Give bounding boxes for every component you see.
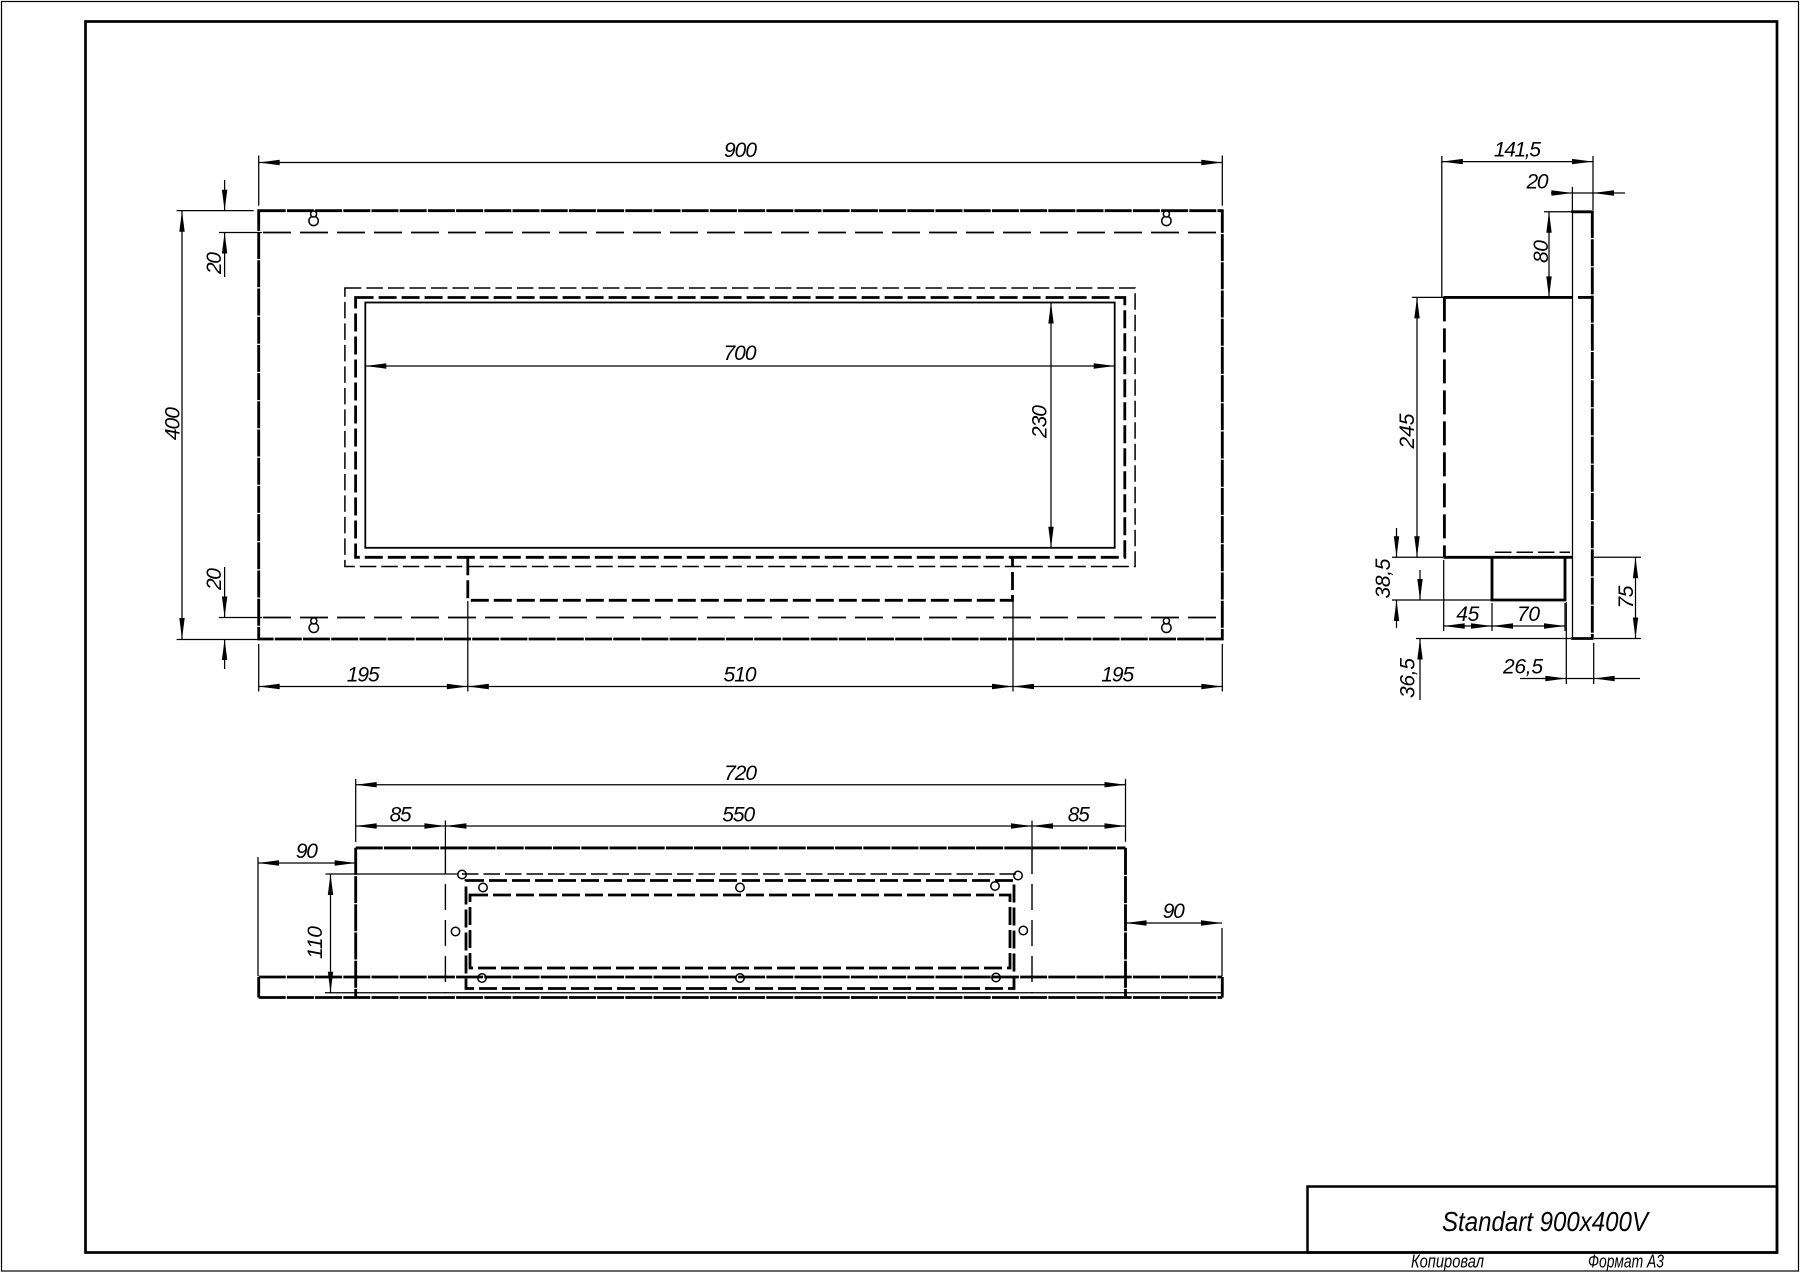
svg-text:85: 85: [390, 804, 412, 827]
svg-text:75: 75: [1615, 585, 1638, 608]
svg-text:85: 85: [1068, 804, 1090, 827]
svg-text:510: 510: [724, 664, 757, 687]
svg-text:90: 90: [1163, 900, 1185, 923]
svg-text:900: 900: [724, 139, 757, 162]
svg-text:20: 20: [203, 568, 226, 591]
svg-text:400: 400: [162, 407, 185, 440]
svg-text:245: 245: [1396, 413, 1419, 449]
svg-text:Standart 900x400V: Standart 900x400V: [1442, 1206, 1650, 1237]
svg-text:45: 45: [1456, 603, 1479, 626]
svg-text:Формат А3: Формат А3: [1588, 1252, 1664, 1272]
svg-text:36,5: 36,5: [1397, 658, 1420, 698]
svg-text:550: 550: [722, 804, 755, 827]
svg-text:195: 195: [347, 664, 380, 687]
svg-text:Копировал: Копировал: [1411, 1252, 1484, 1272]
svg-text:20: 20: [203, 252, 226, 275]
svg-text:26,5: 26,5: [1502, 656, 1543, 679]
svg-text:141,5: 141,5: [1494, 139, 1541, 162]
svg-text:90: 90: [296, 840, 318, 863]
svg-text:720: 720: [724, 762, 757, 785]
svg-text:20: 20: [1526, 171, 1549, 194]
svg-text:70: 70: [1517, 603, 1540, 626]
svg-text:195: 195: [1101, 664, 1134, 687]
svg-text:230: 230: [1029, 405, 1052, 439]
svg-text:38,5: 38,5: [1372, 558, 1395, 598]
svg-text:110: 110: [304, 926, 327, 959]
svg-text:80: 80: [1530, 240, 1553, 263]
svg-text:700: 700: [724, 342, 757, 365]
